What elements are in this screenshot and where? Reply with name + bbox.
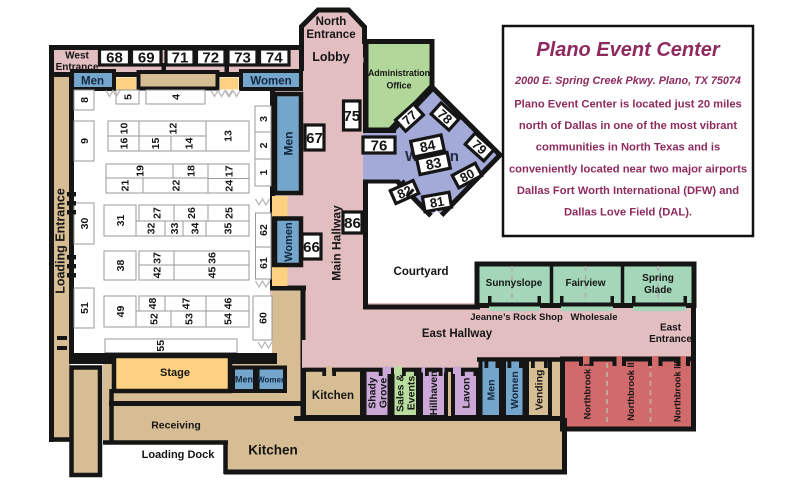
svg-text:72: 72 [202,49,219,66]
svg-text:49: 49 [115,306,127,318]
svg-text:East: East [660,323,682,334]
svg-text:42: 42 [151,267,163,279]
svg-text:1: 1 [258,169,270,175]
svg-text:48: 48 [147,298,159,310]
svg-text:Entrance: Entrance [56,62,99,73]
svg-text:27: 27 [151,207,163,219]
svg-text:Events: Events [405,376,417,411]
svg-text:45: 45 [206,267,218,279]
svg-text:Receiving: Receiving [151,420,201,432]
svg-text:Loading Dock: Loading Dock [142,449,216,461]
svg-text:Women: Women [283,222,295,262]
svg-text:north of Dallas in one of the: north of Dallas in one of the most vibra… [519,120,737,132]
svg-text:19: 19 [134,165,146,177]
svg-text:Lavon: Lavon [460,378,472,409]
svg-text:35: 35 [222,223,234,235]
svg-text:9: 9 [79,138,91,144]
svg-text:2000 E. Spring Creek Pkwy. Pla: 2000 E. Spring Creek Pkwy. Plano, TX 750… [514,75,741,87]
svg-text:Northbrook I: Northbrook I [582,364,592,420]
svg-text:31: 31 [115,215,127,227]
svg-text:52: 52 [148,313,160,325]
svg-text:Dallas Fort Worth Internationa: Dallas Fort Worth International (DFW) an… [517,185,739,197]
svg-text:10: 10 [118,123,130,135]
svg-text:67: 67 [306,130,323,147]
svg-text:Plano Event Center: Plano Event Center [536,39,721,61]
svg-text:Vending: Vending [533,370,545,411]
svg-text:32: 32 [145,223,157,235]
svg-text:76: 76 [371,137,388,154]
svg-text:Sunnyslope: Sunnyslope [486,278,543,289]
svg-text:8: 8 [79,97,91,103]
svg-text:Plano Event Center is located: Plano Event Center is located just 20 mi… [514,99,742,111]
svg-text:86: 86 [344,215,361,232]
svg-text:73: 73 [234,49,251,66]
svg-text:Entrance: Entrance [306,29,355,41]
svg-text:25: 25 [223,207,235,219]
svg-text:Men: Men [485,380,497,401]
svg-text:38: 38 [115,260,127,272]
svg-text:46: 46 [222,298,234,310]
svg-text:Jeanne’s Rock Shop: Jeanne’s Rock Shop [470,312,563,323]
svg-text:61: 61 [258,257,270,269]
svg-text:Women: Women [250,76,291,88]
svg-text:34: 34 [189,223,201,235]
svg-text:Men: Men [235,375,253,385]
svg-text:30: 30 [79,218,91,230]
svg-text:60: 60 [257,312,269,324]
svg-text:22: 22 [170,180,182,192]
svg-text:Entrance: Entrance [649,334,692,345]
svg-text:69: 69 [138,49,155,66]
svg-text:communities in North Texas and: communities in North Texas and is [536,142,720,154]
svg-text:Fairview: Fairview [565,278,605,289]
svg-text:Grove: Grove [377,378,389,409]
svg-text:Kitchen: Kitchen [248,443,298,458]
svg-text:Main Hallway: Main Hallway [329,205,343,281]
svg-text:68: 68 [106,49,123,66]
svg-text:36: 36 [206,252,218,264]
svg-text:Women: Women [509,371,521,409]
svg-text:55: 55 [155,340,167,352]
svg-text:Lobby: Lobby [312,50,350,64]
svg-text:Northbrook III: Northbrook III [672,361,682,422]
svg-text:53: 53 [183,313,195,325]
svg-text:54: 54 [222,313,234,325]
svg-text:Stage: Stage [160,367,190,379]
svg-text:26: 26 [186,207,198,219]
svg-text:Administration: Administration [368,68,430,78]
svg-text:62: 62 [258,224,270,236]
svg-text:74: 74 [266,49,283,66]
svg-text:Office: Office [387,81,412,91]
svg-text:Wholesale: Wholesale [571,312,618,323]
svg-text:12: 12 [167,123,179,135]
svg-text:17: 17 [223,165,235,177]
svg-text:North: North [316,16,347,28]
svg-text:Courtyard: Courtyard [394,266,449,278]
svg-text:51: 51 [79,302,91,314]
svg-text:Loading Entrance: Loading Entrance [54,188,68,294]
svg-text:Spring: Spring [642,273,674,284]
svg-text:East Hallway: East Hallway [422,328,493,340]
svg-text:37: 37 [151,252,163,264]
svg-text:5: 5 [122,94,134,100]
svg-text:47: 47 [180,298,192,310]
svg-text:16: 16 [118,138,130,150]
svg-text:81: 81 [429,194,446,211]
svg-text:Dallas Love Field (DAL).: Dallas Love Field (DAL). [564,207,692,219]
svg-text:14: 14 [183,138,195,150]
svg-text:conveniently located near two: conveniently located near two major airp… [509,163,747,175]
svg-text:Northbrook II: Northbrook II [626,362,636,420]
svg-text:Men: Men [281,132,295,156]
svg-text:66: 66 [303,239,320,256]
svg-text:13: 13 [222,130,234,142]
svg-text:3: 3 [258,116,270,122]
svg-text:15: 15 [150,138,162,150]
svg-text:18: 18 [185,165,197,177]
svg-text:Men: Men [81,76,104,88]
svg-text:24: 24 [223,180,235,192]
svg-text:2: 2 [258,142,270,148]
svg-text:71: 71 [172,49,189,66]
svg-text:Glade: Glade [644,285,672,296]
svg-text:21: 21 [119,180,131,192]
svg-text:West: West [65,51,89,62]
svg-text:75: 75 [343,108,360,125]
svg-text:Hillhaven: Hillhaven [429,371,440,415]
svg-text:4: 4 [170,94,182,100]
svg-text:33: 33 [169,223,181,235]
svg-text:Kitchen: Kitchen [312,390,354,402]
svg-text:Women: Women [257,376,286,385]
